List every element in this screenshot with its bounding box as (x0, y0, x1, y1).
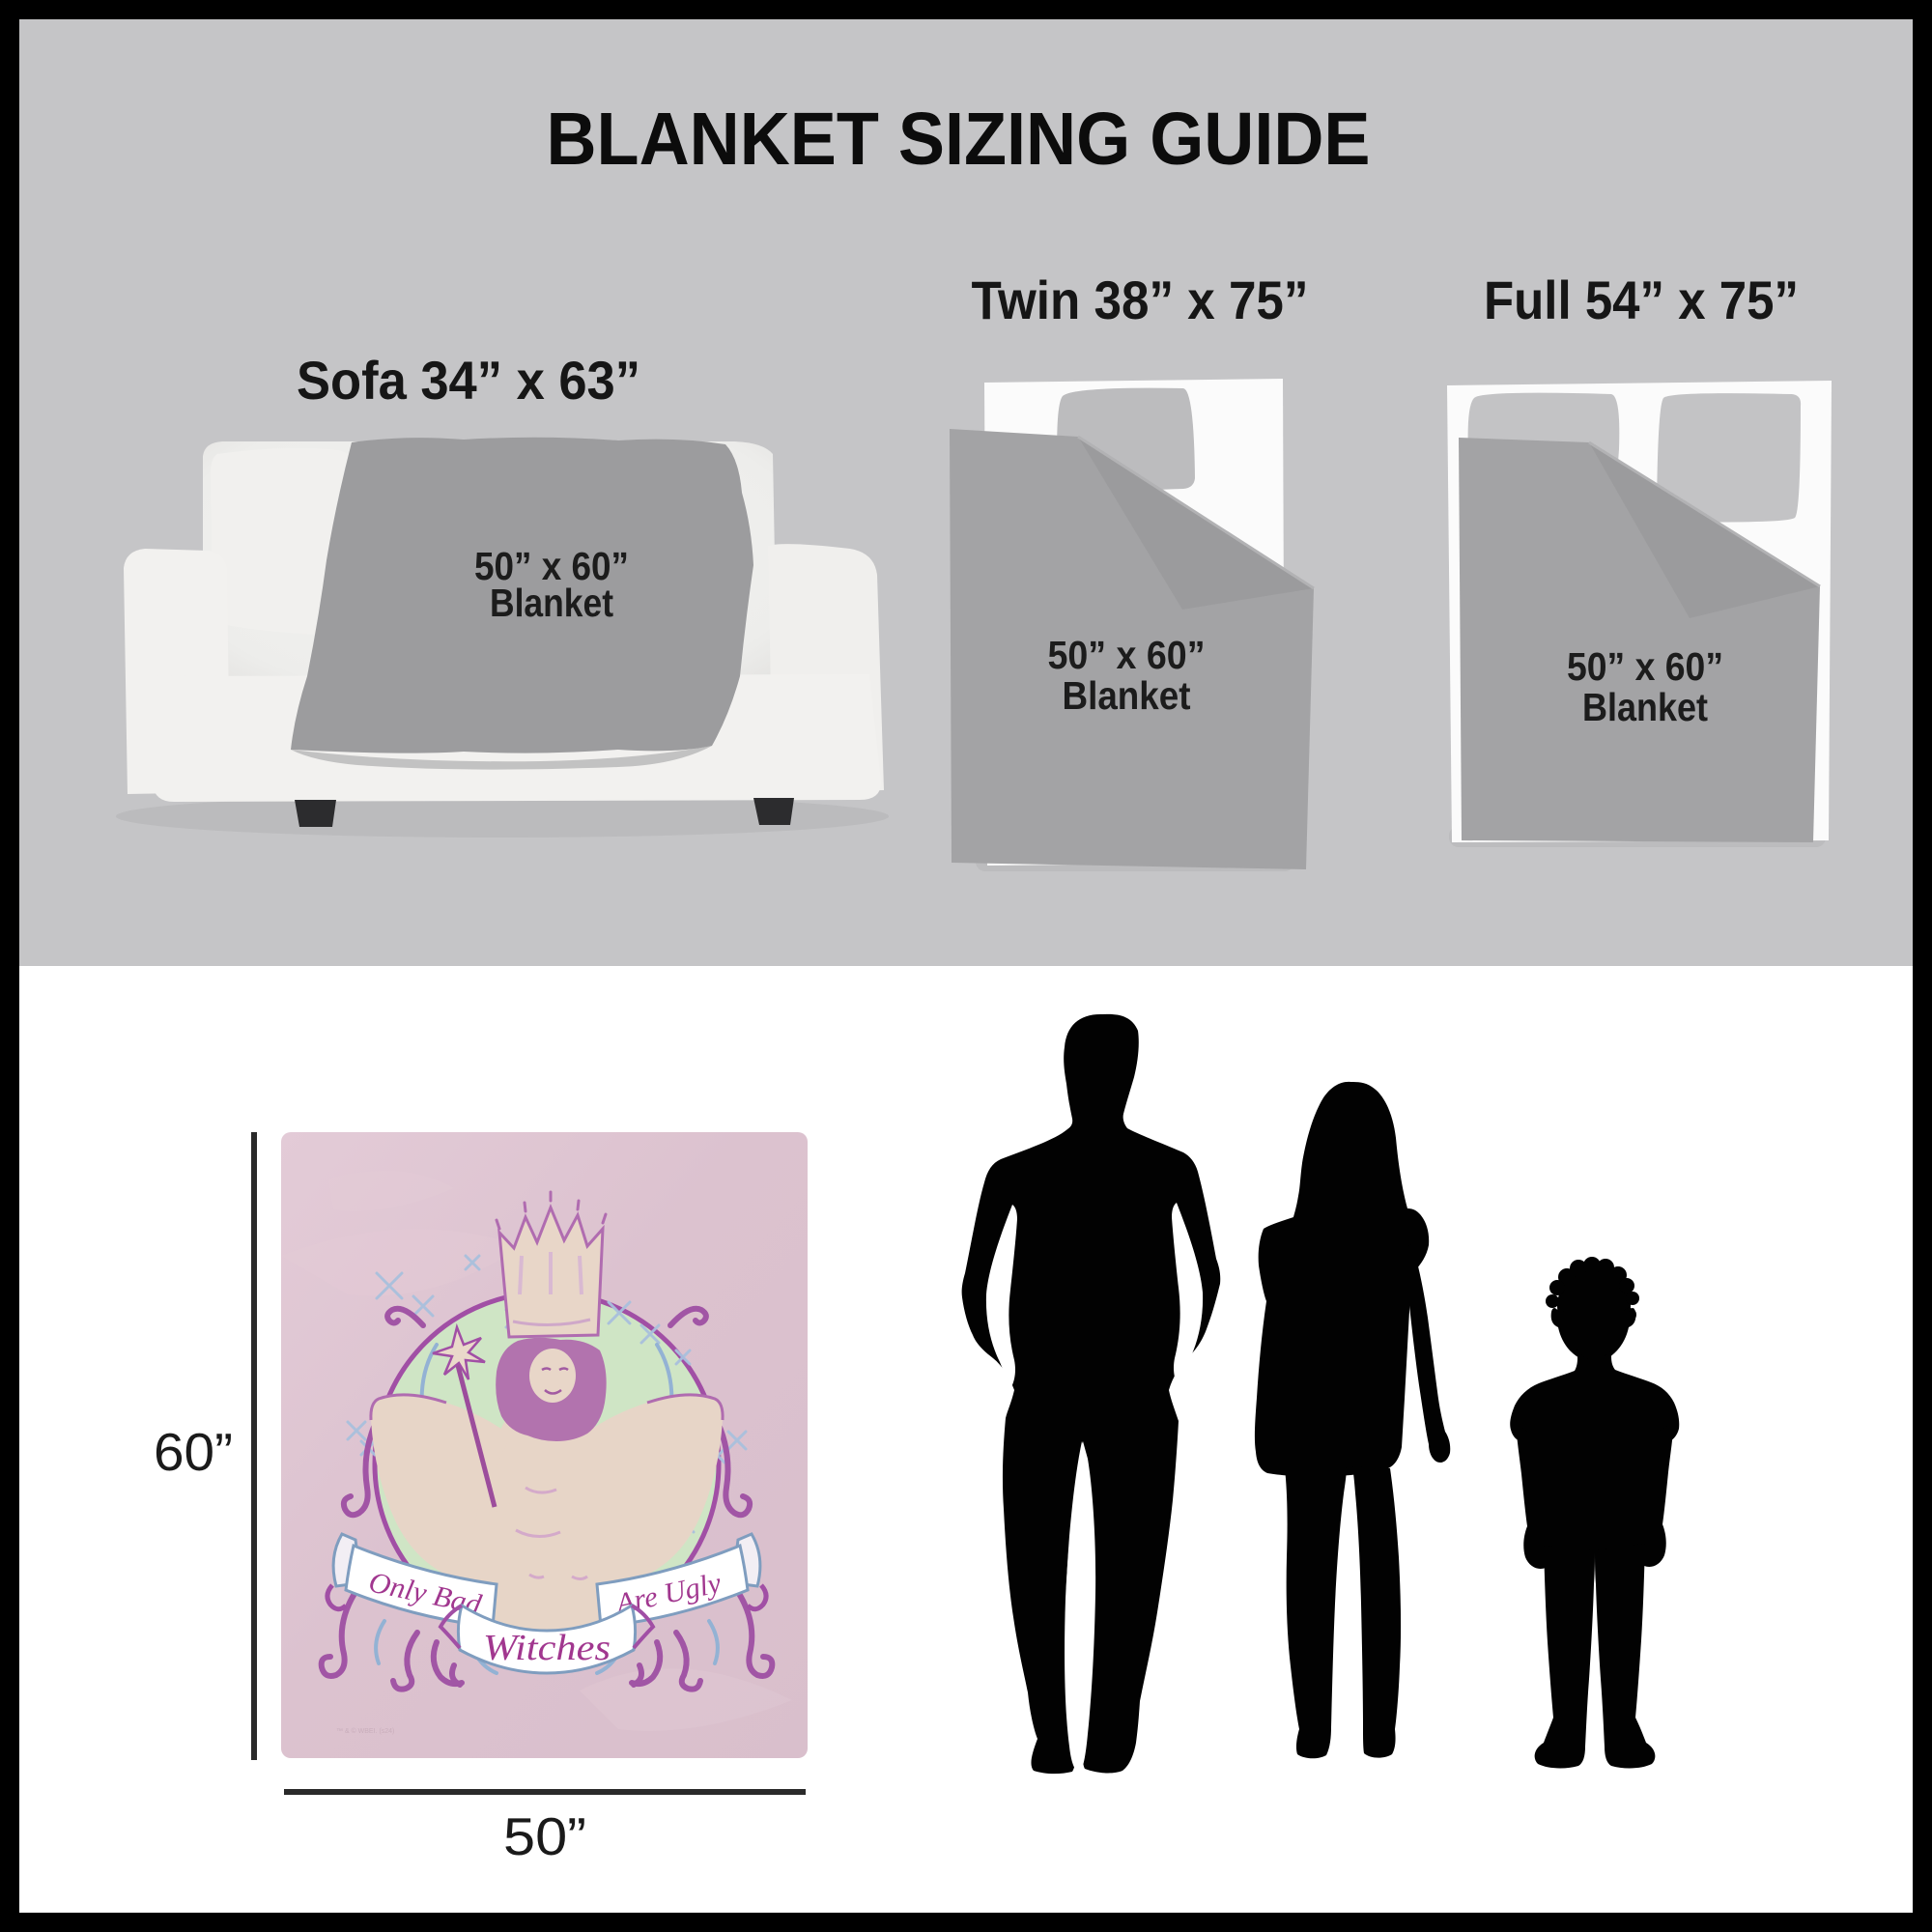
svg-text:Twin 38” x 75”: Twin 38” x 75” (972, 270, 1309, 330)
svg-text:Witches: Witches (483, 1628, 611, 1668)
svg-text:Blanket: Blanket (1063, 673, 1191, 718)
svg-text:50” x 60”: 50” x 60” (1048, 633, 1206, 677)
svg-text:Blanket: Blanket (1582, 685, 1708, 729)
svg-text:BLANKET SIZING GUIDE: BLANKET SIZING GUIDE (547, 98, 1371, 181)
svg-text:Full 54” x 75”: Full 54” x 75” (1484, 270, 1799, 330)
svg-text:Sofa 34” x 63”: Sofa 34” x 63” (297, 350, 640, 411)
svg-text:60”: 60” (154, 1422, 233, 1482)
svg-text:50”: 50” (503, 1806, 586, 1866)
svg-text:™ & © WBEI. (s24): ™ & © WBEI. (s24) (336, 1727, 394, 1735)
svg-text:Blanket: Blanket (490, 581, 613, 625)
svg-text:50” x 60”: 50” x 60” (1567, 644, 1723, 689)
